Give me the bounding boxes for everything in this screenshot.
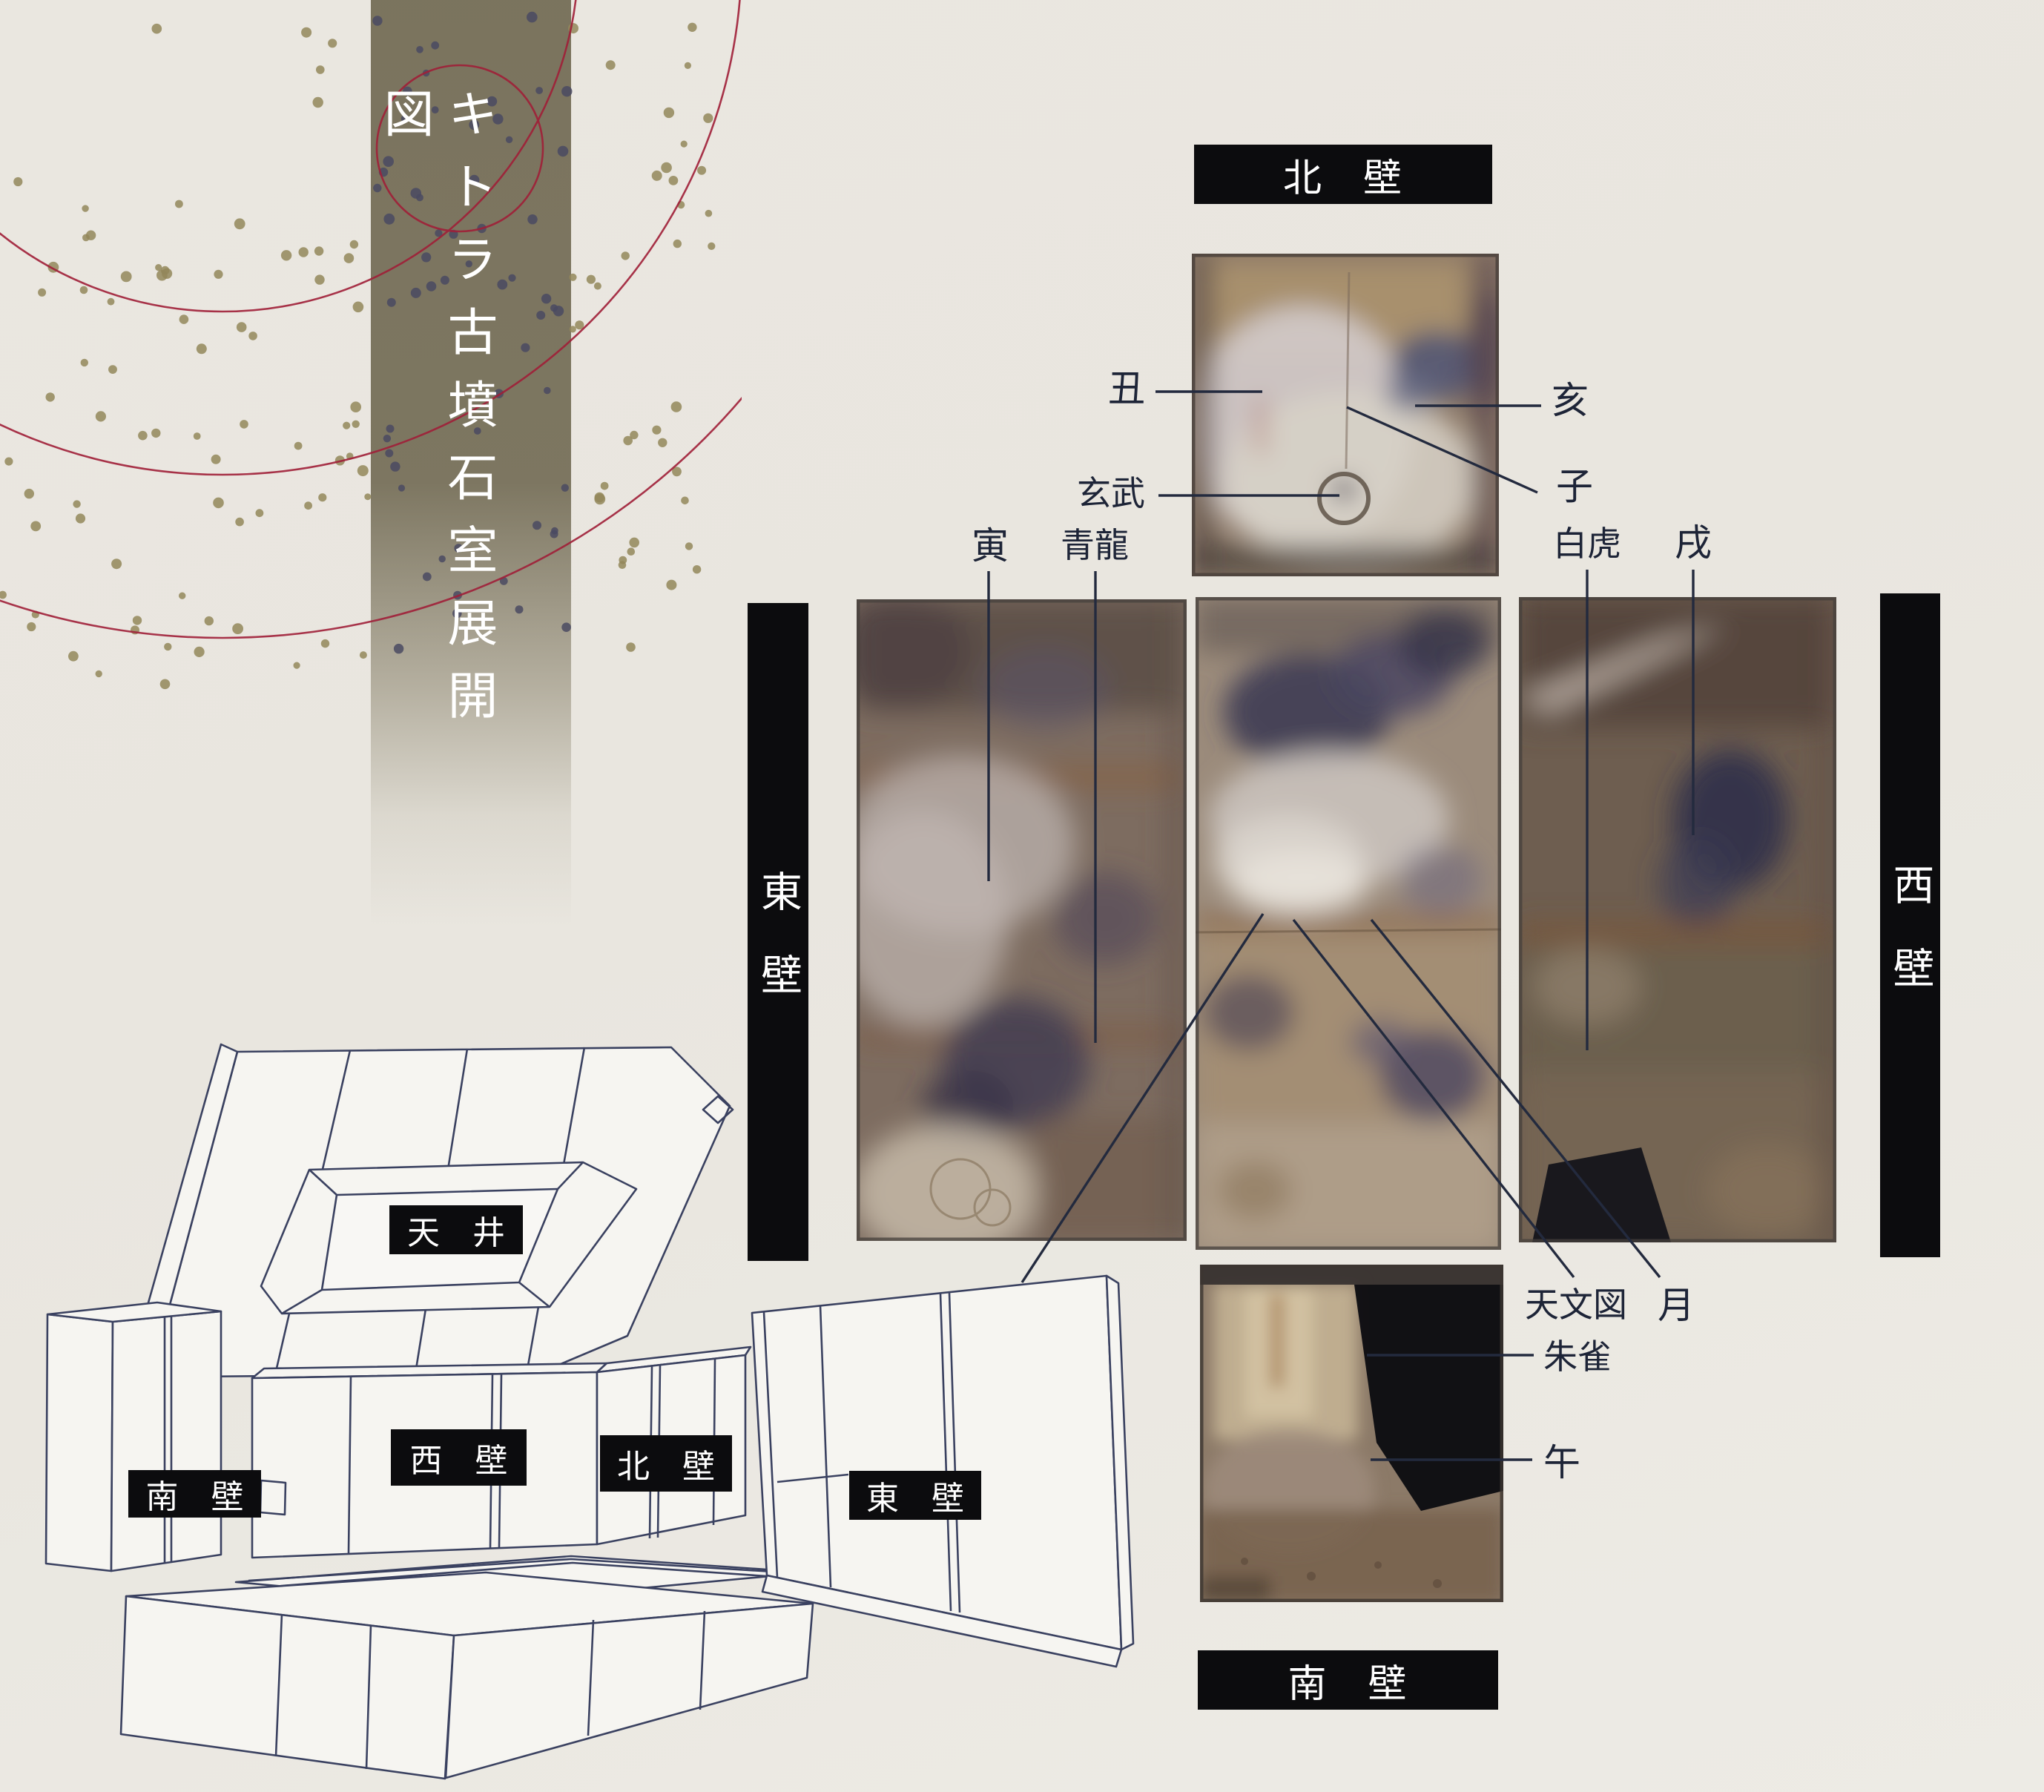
chamber-3d-drawing <box>37 1024 1150 1788</box>
kitora-tomb-diagram-poster: { "title": { "text": "キトラ古墳石室展開図" }, "wa… <box>0 0 2044 1792</box>
tag-west-wall-label: 西 壁 <box>410 1434 508 1481</box>
tenmonzu-leader-line <box>1293 920 1574 1277</box>
label-tora: 寅 <box>972 527 1009 566</box>
ne-leader-line <box>1347 407 1537 493</box>
tag-north-wall-label: 北 壁 <box>617 1440 715 1487</box>
label-genbu: 玄武 <box>1077 476 1145 512</box>
label-ne: 子 <box>1556 467 1593 507</box>
label-inu: 戌 <box>1675 524 1712 563</box>
label-byakko: 白虎 <box>1553 527 1621 562</box>
tag-east-wall-label: 東 壁 <box>866 1472 964 1519</box>
south-wall-3d-side <box>46 1314 113 1571</box>
label-uma: 午 <box>1543 1443 1580 1483</box>
south-wall-3d-face <box>111 1311 221 1571</box>
label-tenmonzu: 天文図 <box>1525 1288 1627 1323</box>
tag-west-wall: 西 壁 <box>391 1429 527 1486</box>
tag-south-wall: 南 壁 <box>128 1470 261 1518</box>
label-suzaku: 朱雀 <box>1543 1340 1612 1375</box>
tag-south-wall-label: 南 壁 <box>146 1470 244 1518</box>
label-seiryu: 青龍 <box>1061 528 1129 564</box>
moon-leader-line <box>1371 920 1660 1277</box>
tag-north-wall: 北 壁 <box>600 1435 732 1492</box>
tag-ceiling: 天 井 <box>389 1205 523 1254</box>
label-i: 亥 <box>1552 381 1589 421</box>
tag-ceiling-label: 天 井 <box>407 1206 505 1254</box>
label-ushi: 丑 <box>1108 369 1145 409</box>
tag-east-wall: 東 壁 <box>849 1471 981 1520</box>
label-moon: 月 <box>1658 1286 1695 1325</box>
